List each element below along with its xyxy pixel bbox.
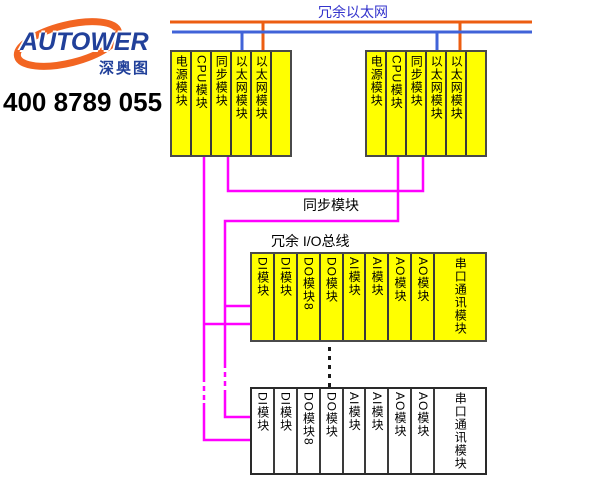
- company-logo: AUTOWER 深奥图: [6, 14, 161, 76]
- ethernet-bus-label: 冗余以太网: [318, 2, 388, 22]
- module-slot-serial-comm: 串口通讯模块: [435, 389, 485, 473]
- module-slot-di: DI模块: [252, 254, 275, 340]
- more-racks-ellipsis: [328, 347, 331, 387]
- diagram-canvas: AUTOWER 深奥图 400 8789 055 冗余以太网 同步模块 冗余 I…: [0, 0, 600, 480]
- module-label: CPU模块: [195, 52, 208, 109]
- module-label: AO模块: [393, 389, 406, 437]
- io-rack-2: DI模块 DI模块 DO模块8 DO模块 AI模块 AI模块 AO模块 AO模块…: [250, 387, 487, 475]
- io-bus-label: 冗余 I/O总线: [271, 231, 350, 251]
- module-label: AI模块: [371, 389, 384, 431]
- module-label: DO模块8: [302, 389, 315, 446]
- module-label: AO模块: [393, 254, 406, 302]
- module-slot-ao: AO模块: [389, 389, 412, 473]
- ethernet-line-orange: [170, 22, 532, 50]
- module-slot-ao: AO模块: [412, 254, 435, 340]
- module-label: 同步模块: [215, 52, 228, 107]
- module-label: CPU模块: [390, 52, 403, 109]
- module-label: DI模块: [256, 254, 269, 297]
- module-slot-ai: AI模块: [344, 254, 367, 340]
- sync-link-line: [228, 155, 423, 191]
- module-slot-cpu: CPU模块: [192, 52, 212, 155]
- module-label: DI模块: [279, 389, 292, 432]
- module-slot-ethernet: 以太网模块: [232, 52, 252, 155]
- module-label: 以太网模块: [255, 52, 268, 120]
- module-slot-ethernet: 以太网模块: [447, 52, 467, 155]
- module-label: 电源模块: [175, 52, 188, 107]
- module-label: AI模块: [348, 389, 361, 431]
- module-slot-do: DO模块: [321, 254, 344, 340]
- module-slot-ao: AO模块: [412, 389, 435, 473]
- logo-wordmark: AUTOWER: [20, 28, 149, 57]
- module-slot-empty: [467, 52, 485, 155]
- module-slot-cpu: CPU模块: [387, 52, 407, 155]
- controller-rack-1: 电源模块 CPU模块 同步模块 以太网模块 以太网模块: [170, 50, 292, 157]
- module-slot-power: 电源模块: [172, 52, 192, 155]
- module-slot-di: DI模块: [275, 254, 298, 340]
- module-slot-ai: AI模块: [344, 389, 367, 473]
- module-label: DO模块: [325, 389, 338, 438]
- module-label: 串口通讯模块: [454, 254, 467, 335]
- module-label: 串口通讯模块: [454, 389, 467, 470]
- module-slot-ai: AI模块: [366, 389, 389, 473]
- module-slot-serial-comm: 串口通讯模块: [435, 254, 485, 340]
- module-slot-ethernet: 以太网模块: [252, 52, 272, 155]
- module-slot-sync: 同步模块: [212, 52, 232, 155]
- ethernet-line-blue: [172, 32, 532, 50]
- io-rack-1: DI模块 DI模块 DO模块8 DO模块 AI模块 AI模块 AO模块 AO模块…: [250, 252, 487, 342]
- module-slot-di: DI模块: [275, 389, 298, 473]
- module-label: DI模块: [256, 389, 269, 432]
- module-slot-ai: AI模块: [366, 254, 389, 340]
- module-label: AI模块: [348, 254, 361, 296]
- module-slot-sync: 同步模块: [407, 52, 427, 155]
- module-label: DO模块: [325, 254, 338, 303]
- module-slot-do: DO模块8: [298, 389, 321, 473]
- module-slot-di: DI模块: [252, 389, 275, 473]
- module-slot-empty: [272, 52, 290, 155]
- module-label: 以太网模块: [450, 52, 463, 120]
- phone-number: 400 8789 055: [3, 87, 162, 118]
- module-label: 同步模块: [410, 52, 423, 107]
- module-label: DI模块: [279, 254, 292, 297]
- controller-rack-2: 电源模块 CPU模块 同步模块 以太网模块 以太网模块: [365, 50, 487, 157]
- io-bus-line-a: [204, 155, 252, 440]
- module-label: DO模块8: [302, 254, 315, 311]
- module-label: AI模块: [371, 254, 384, 296]
- module-slot-ao: AO模块: [389, 254, 412, 340]
- module-slot-do: DO模块: [321, 389, 344, 473]
- module-slot-do: DO模块8: [298, 254, 321, 340]
- sync-link-label: 同步模块: [303, 195, 359, 215]
- module-slot-power: 电源模块: [367, 52, 387, 155]
- module-label: 以太网模块: [235, 52, 248, 120]
- module-slot-ethernet: 以太网模块: [427, 52, 447, 155]
- logo-chinese-name: 深奥图: [99, 57, 150, 78]
- module-label: AO模块: [416, 254, 429, 302]
- module-label: 以太网模块: [430, 52, 443, 120]
- module-label: 电源模块: [370, 52, 383, 107]
- module-label: AO模块: [416, 389, 429, 437]
